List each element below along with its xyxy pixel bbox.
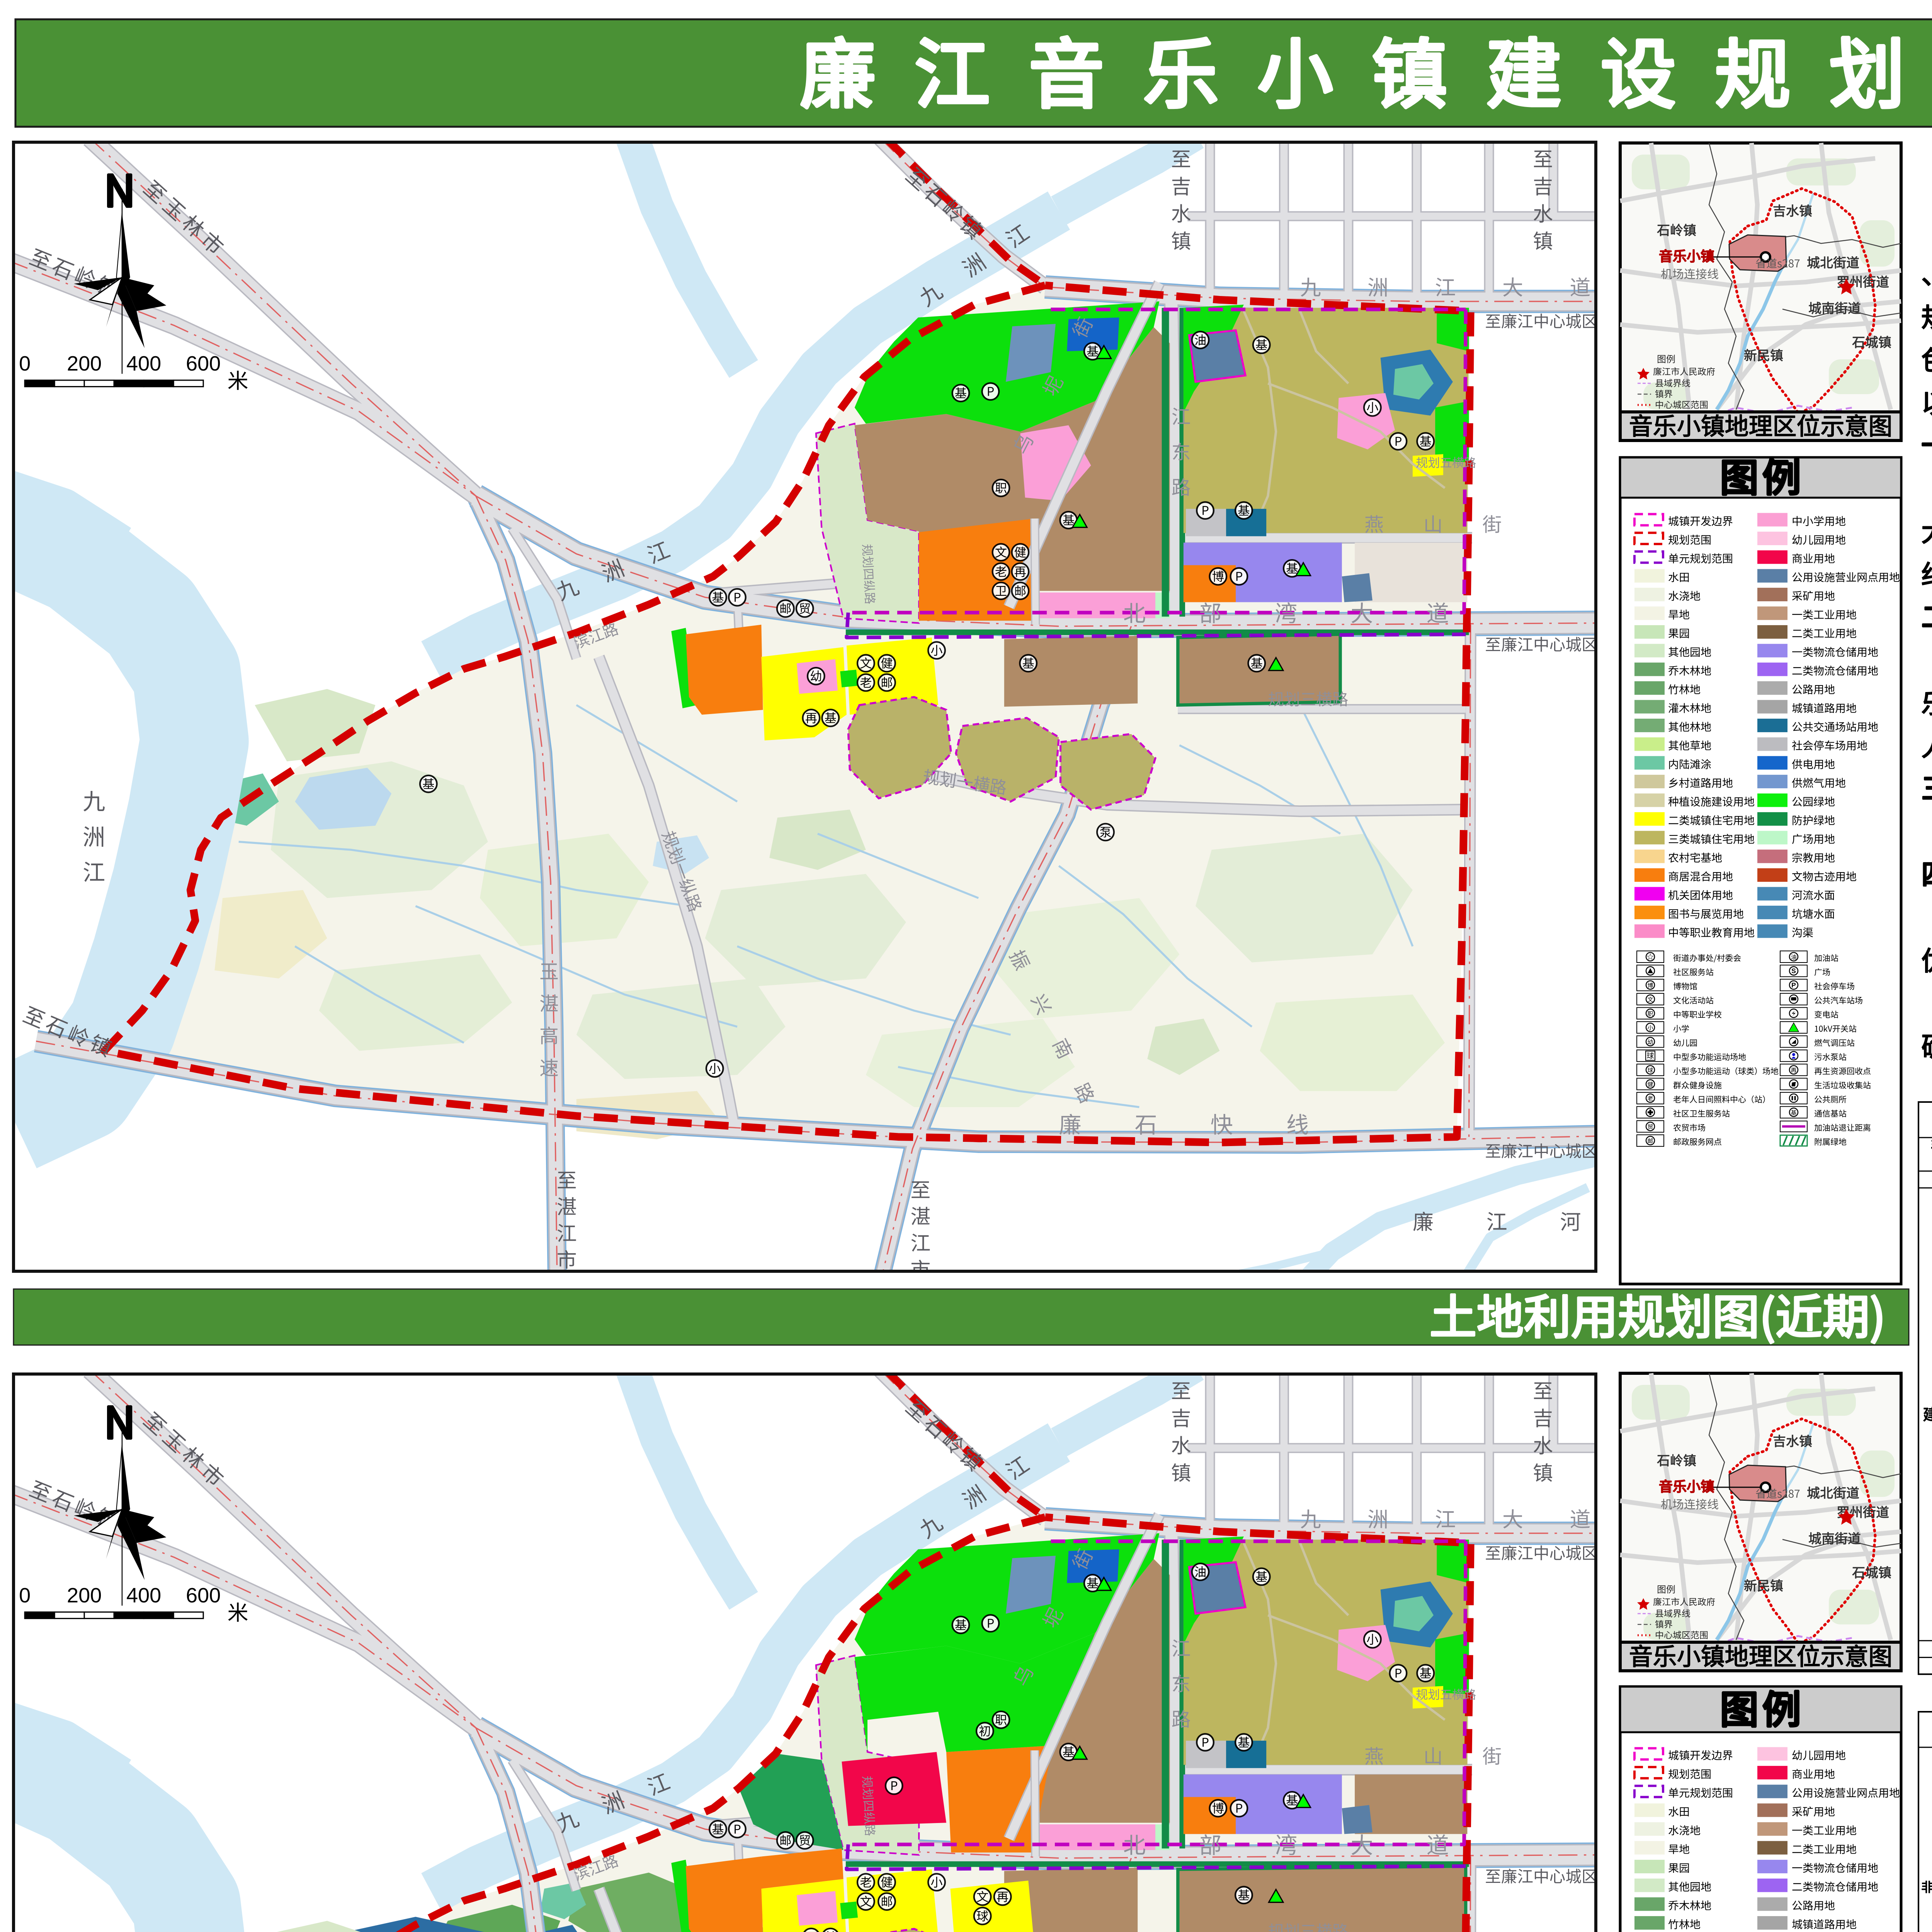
svg-text:200: 200 xyxy=(67,352,102,375)
svg-text:0: 0 xyxy=(19,352,31,375)
svg-text:S: S xyxy=(1791,967,1796,975)
svg-text:600: 600 xyxy=(186,1584,221,1607)
svg-text:400: 400 xyxy=(126,1584,161,1607)
svg-text:0: 0 xyxy=(19,1584,31,1607)
svg-text:400: 400 xyxy=(126,352,161,375)
svg-text:200: 200 xyxy=(67,1584,102,1607)
svg-text:P: P xyxy=(1791,981,1796,989)
svg-text:600: 600 xyxy=(186,352,221,375)
